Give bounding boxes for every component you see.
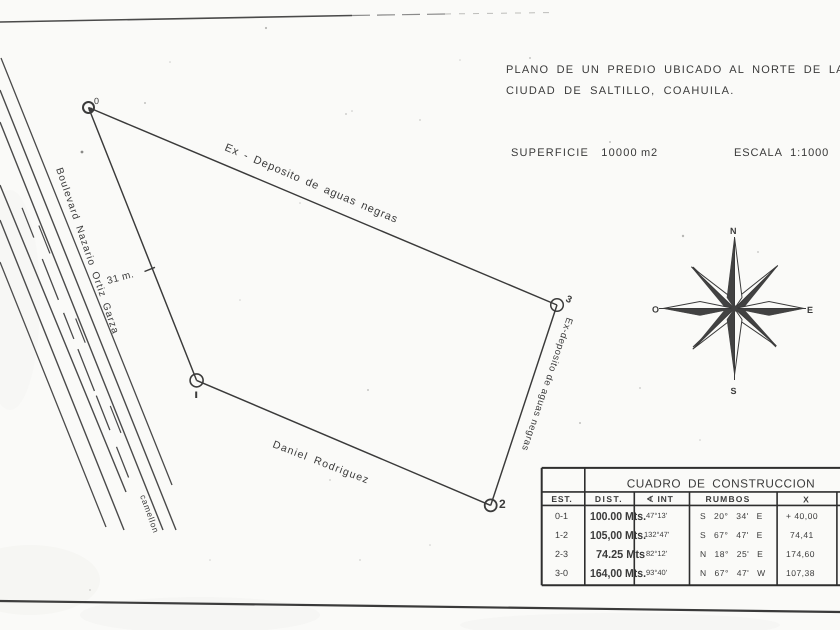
svg-text:174,60: 174,60	[786, 549, 815, 559]
svg-text:m2: m2	[641, 147, 658, 159]
svg-text:74.25 Mts: 74.25 Mts	[596, 549, 645, 561]
svg-text:X: X	[803, 495, 809, 505]
svg-text:1-2: 1-2	[555, 530, 568, 540]
svg-text:132°47': 132°47'	[644, 530, 670, 539]
svg-text:S: S	[731, 386, 737, 396]
svg-text:105,00 Mts.: 105,00 Mts.	[590, 530, 646, 542]
svg-text:SUPERFICIE 10000: SUPERFICIE 10000	[511, 147, 638, 159]
svg-text:S 20° 34' E: S 20° 34' E	[700, 511, 763, 521]
svg-text:74,41: 74,41	[790, 530, 814, 540]
svg-text:N 67° 47' W: N 67° 47' W	[700, 568, 766, 578]
svg-text:CIUDAD DE SALTILLO, COAHUILA.: CIUDAD DE SALTILLO, COAHUILA.	[506, 85, 735, 97]
svg-text:82°12': 82°12'	[646, 549, 668, 558]
svg-text:0: 0	[94, 96, 99, 106]
svg-text:O: O	[652, 305, 659, 315]
svg-text:N: N	[730, 226, 737, 236]
svg-text:164,00 Mts.: 164,00 Mts.	[590, 568, 646, 580]
svg-text:DIST.: DIST.	[595, 494, 623, 504]
svg-text:2-3: 2-3	[555, 549, 568, 559]
svg-text:RUMBOS: RUMBOS	[706, 494, 751, 504]
svg-text:2: 2	[499, 497, 506, 511]
svg-text:S 67° 47' E: S 67° 47' E	[700, 530, 763, 540]
svg-text:93°40': 93°40'	[646, 568, 668, 577]
svg-text:N 18° 25' E: N 18° 25' E	[700, 549, 763, 559]
svg-text:CUADRO DE CONSTRUCCION: CUADRO DE CONSTRUCCION	[627, 477, 816, 491]
svg-text:ESCALA 1:1000: ESCALA 1:1000	[734, 147, 829, 159]
svg-text:∢ INT: ∢ INT	[646, 494, 673, 504]
svg-text:PLANO DE UN PREDIO UBICADO AL: PLANO DE UN PREDIO UBICADO AL NORTE DE L…	[506, 64, 840, 76]
svg-text:E: E	[807, 305, 813, 315]
svg-text:107,38: 107,38	[786, 568, 815, 578]
svg-text:47°13': 47°13'	[646, 511, 668, 520]
svg-text:3-0: 3-0	[555, 568, 568, 578]
svg-text:EST.: EST.	[551, 494, 572, 504]
svg-text:100.00 Mts.: 100.00 Mts.	[590, 511, 646, 523]
svg-text:+ 40,00: + 40,00	[786, 511, 818, 521]
svg-text:0-1: 0-1	[555, 511, 568, 521]
